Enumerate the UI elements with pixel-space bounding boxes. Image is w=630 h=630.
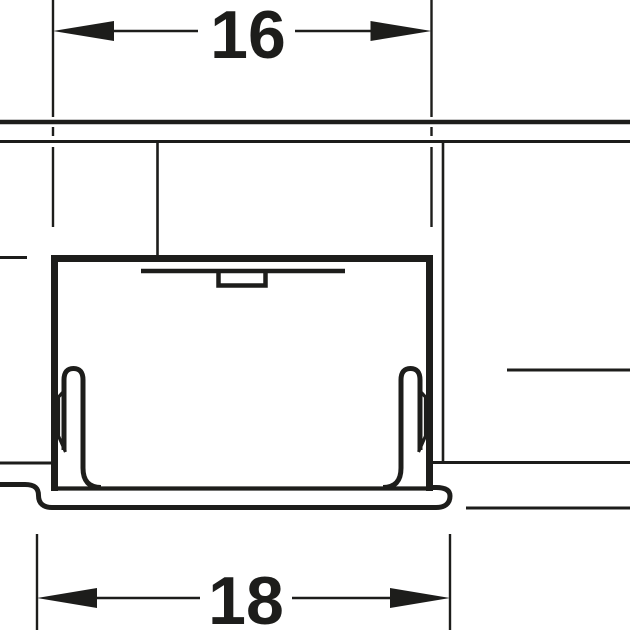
spring-clip-right	[383, 369, 420, 488]
dim-16-arrow-left-icon	[53, 21, 114, 41]
dim-18-arrow-right-icon	[390, 588, 450, 608]
profile-cross-section-drawing: 16 18	[0, 0, 630, 630]
spring-clip-left	[64, 369, 101, 488]
drawing-svg: 16 18	[0, 0, 630, 630]
dim-18-arrow-left-icon	[37, 588, 97, 608]
dim-16-arrow-right-icon	[371, 21, 432, 41]
dim-16-label: 16	[210, 0, 286, 73]
dim-18-label: 18	[208, 563, 284, 630]
profile-outline	[55, 259, 430, 492]
